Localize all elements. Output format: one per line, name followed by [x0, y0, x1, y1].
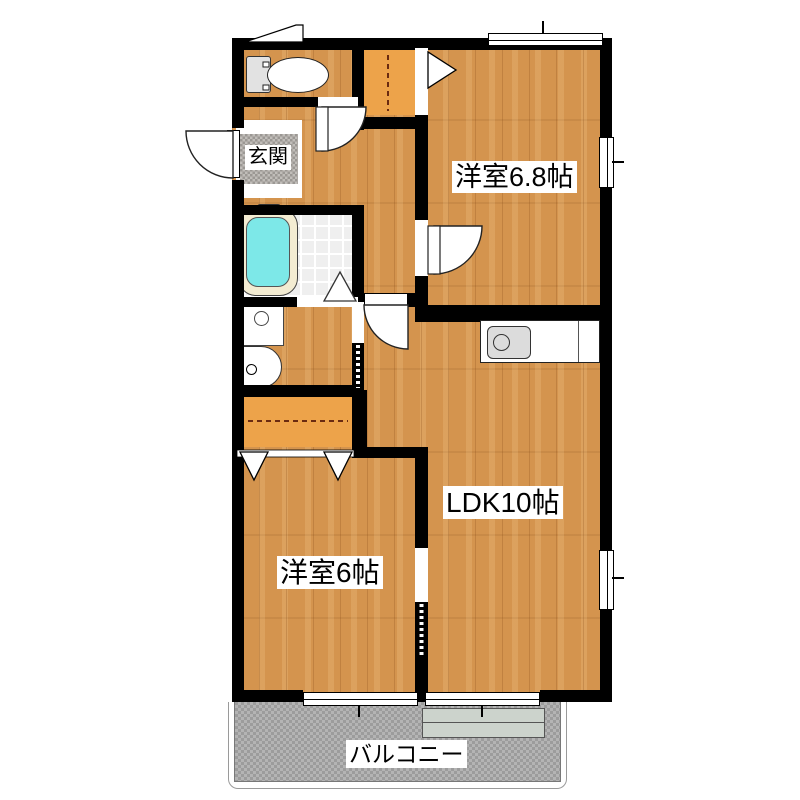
room1-door-panel — [428, 226, 440, 274]
door-swing-overlay — [0, 0, 800, 800]
entrance-label: 玄関 — [245, 145, 291, 170]
closet-folding-door-left-icon — [240, 452, 268, 480]
toilet-hinge-top — [263, 62, 269, 67]
ldk-door-swing — [364, 305, 408, 349]
toilet-door-swing — [322, 107, 366, 151]
closet-folding-door-right-icon — [324, 452, 352, 480]
entrance-canopy-icon — [245, 25, 303, 42]
floor-plan: 洋室6.8帖 LDK10帖 洋室6帖 玄関 バルコニー — [0, 0, 800, 800]
bathroom-folding-door-icon — [324, 272, 356, 301]
toilet-door-panel — [316, 107, 328, 151]
room1-door-triangle-icon — [428, 52, 456, 88]
room1-door-swing — [434, 226, 482, 274]
room1-label: 洋室6.8帖 — [452, 161, 577, 193]
entrance-door-swing — [186, 131, 233, 178]
toilet-hinge-bottom — [263, 85, 269, 90]
room2-label: 洋室6帖 — [277, 556, 383, 589]
ldk-label: LDK10帖 — [443, 486, 563, 519]
balcony-label: バルコニー — [346, 740, 467, 768]
